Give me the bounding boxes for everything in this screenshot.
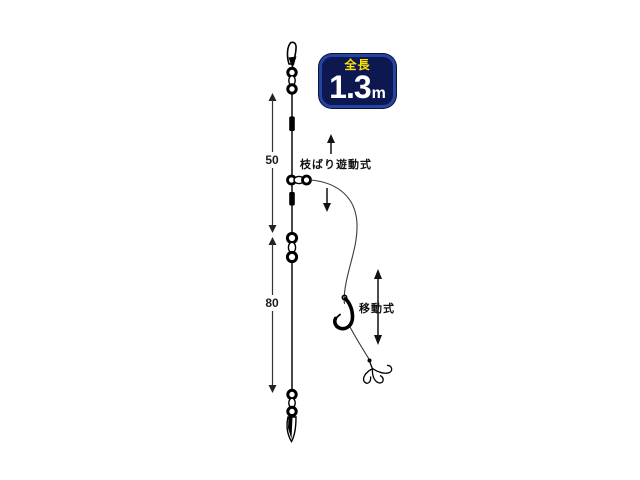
lower-stopper-bead-icon: [289, 192, 295, 206]
sliding-branch-swivel-icon: [288, 176, 311, 184]
movable-label: 移動式: [359, 300, 395, 316]
total-length-unit: m: [372, 85, 386, 103]
middle-swivel-icon: [287, 233, 296, 261]
top-snap-swivel-icon: [287, 42, 296, 93]
branch-line: [311, 180, 358, 304]
total-length-badge: 全長 1.3 m: [319, 54, 396, 108]
lower-dimension-line: [269, 237, 277, 393]
upper-stopper-bead-icon: [289, 117, 295, 132]
branch-slide-up-arrow-icon: [327, 134, 335, 154]
branch-slide-label: 枝ばり遊動式: [300, 156, 372, 172]
fishing-rig-diagram-page: 全長 1.3 m 50 80 枝ばり遊動式 移動式: [0, 0, 640, 480]
total-length-value-row: 1.3 m: [329, 70, 386, 104]
total-length-value: 1.3: [329, 70, 370, 104]
branch-slide-down-arrow-icon: [323, 188, 331, 212]
leader-line: [350, 327, 369, 359]
upper-length-label: 50: [258, 152, 286, 168]
treble-hook-icon: [364, 359, 392, 384]
bottom-snap-swivel-icon: [287, 390, 296, 441]
lower-length-label: 80: [258, 295, 286, 311]
sliding-hook-icon: [335, 295, 353, 328]
